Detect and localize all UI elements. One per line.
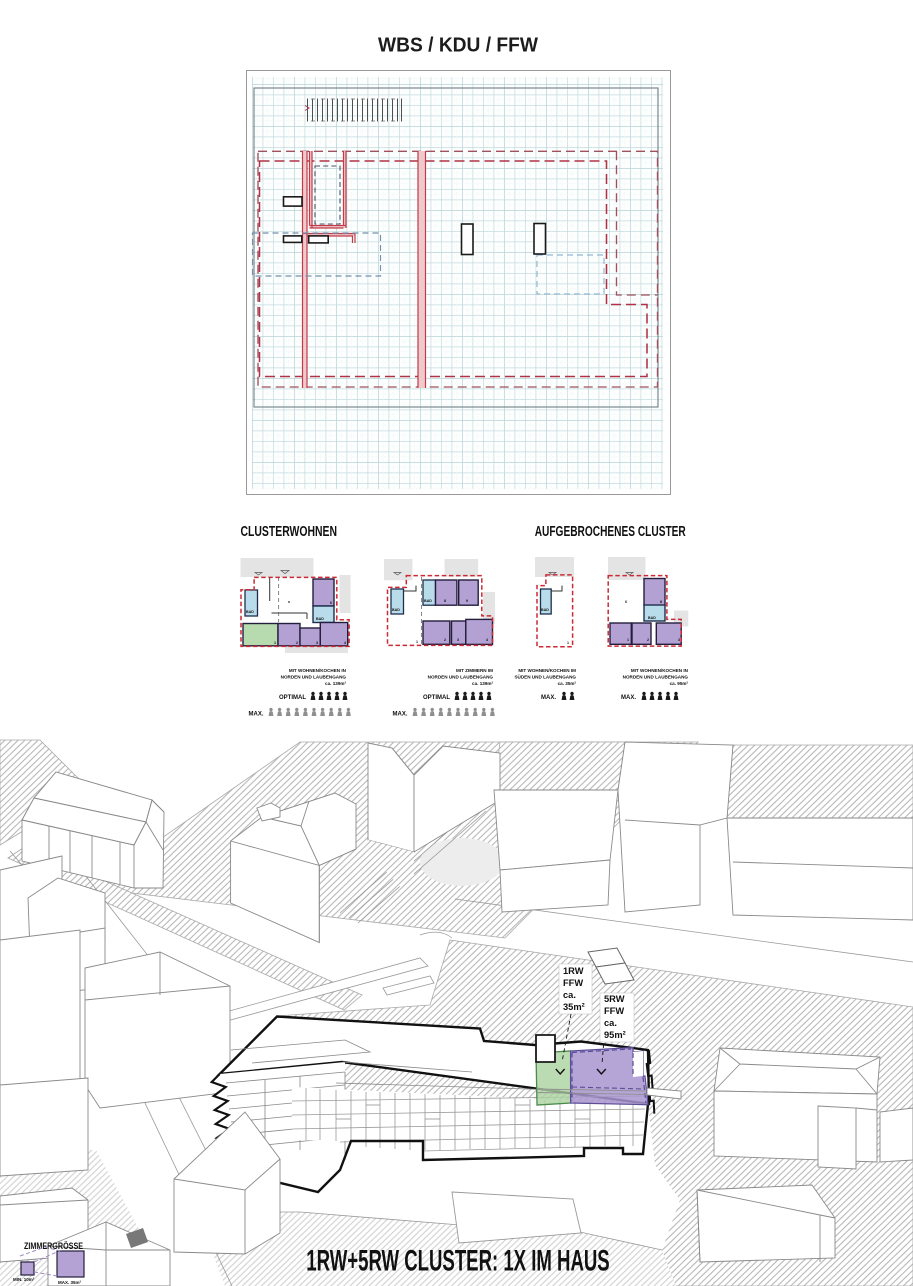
svg-text:ca. 139m²: ca. 139m²: [472, 681, 493, 686]
svg-text:4: 4: [486, 638, 488, 642]
svg-text:9: 9: [466, 599, 468, 603]
svg-text:ca. 35m²: ca. 35m²: [558, 681, 577, 686]
svg-text:MAX.: MAX.: [393, 712, 408, 718]
svg-text:WBS / KDU / FFW: WBS / KDU / FFW: [378, 34, 538, 56]
svg-text:6: 6: [330, 601, 332, 605]
svg-text:MIN. 10m²: MIN. 10m²: [13, 1277, 35, 1282]
svg-text:35m²: 35m²: [563, 1002, 585, 1012]
svg-text:CLUSTERWOHNEN: CLUSTERWOHNEN: [241, 523, 338, 539]
svg-text:ca.: ca.: [563, 990, 576, 1000]
svg-text:BAD: BAD: [392, 608, 400, 612]
svg-text:OPTIMAL: OPTIMAL: [279, 695, 306, 701]
svg-text:1RW+5RW CLUSTER: 1X IM HAUS: 1RW+5RW CLUSTER: 1X IM HAUS: [306, 1244, 609, 1278]
svg-text:MAX.: MAX.: [621, 695, 636, 701]
svg-text:1: 1: [567, 641, 569, 645]
svg-text:ca.: ca.: [604, 1018, 617, 1028]
svg-text:MIT WOHNEN/KOCHEN IN: MIT WOHNEN/KOCHEN IN: [289, 668, 347, 673]
svg-text:MAX. 35m²: MAX. 35m²: [58, 1280, 82, 1285]
svg-text:NORDEN UND LAUBENGANG: NORDEN UND LAUBENGANG: [623, 675, 689, 680]
svg-text:3: 3: [457, 638, 459, 642]
svg-text:8: 8: [444, 599, 446, 603]
svg-text:FFW: FFW: [604, 1006, 624, 1016]
svg-text:1: 1: [627, 638, 629, 642]
svg-text:MAX.: MAX.: [541, 695, 556, 701]
svg-text:95m²: 95m²: [604, 1030, 626, 1040]
svg-text:SÜDEN UND LAUBENGANG: SÜDEN UND LAUBENGANG: [514, 674, 576, 680]
svg-text:1: 1: [274, 641, 276, 645]
svg-text:1: 1: [416, 640, 418, 644]
svg-text:MIT WOHNEN/KOCHEN IN: MIT WOHNEN/KOCHEN IN: [631, 668, 689, 673]
svg-text:ca. 139m²: ca. 139m²: [325, 681, 346, 686]
svg-text:3: 3: [678, 638, 680, 642]
svg-text:3: 3: [316, 641, 318, 645]
svg-text:5RW: 5RW: [604, 994, 625, 1004]
svg-text:2: 2: [647, 638, 649, 642]
svg-text:MIT WOHNEN/KOCHEN IM: MIT WOHNEN/KOCHEN IM: [518, 668, 576, 673]
svg-text:NORDEN UND LAUBENGANG: NORDEN UND LAUBENGANG: [281, 675, 347, 680]
svg-text:4: 4: [344, 641, 346, 645]
svg-text:ca. 95m²: ca. 95m²: [670, 681, 689, 686]
svg-text:NORDEN UND LAUBENGANG: NORDEN UND LAUBENGANG: [428, 675, 494, 680]
svg-text:BAD: BAD: [246, 610, 254, 614]
svg-text:2: 2: [296, 641, 298, 645]
svg-text:6: 6: [625, 600, 627, 604]
svg-text:AUFGEBROCHENES CLUSTER: AUFGEBROCHENES CLUSTER: [535, 523, 686, 539]
svg-text:FFW: FFW: [563, 978, 583, 988]
svg-text:BAD: BAD: [316, 617, 324, 621]
svg-text:MIT ZIMMERN IM: MIT ZIMMERN IM: [456, 668, 493, 673]
svg-text:2: 2: [444, 638, 446, 642]
svg-text:BAD: BAD: [541, 608, 549, 612]
svg-text:BAD: BAD: [648, 616, 656, 620]
svg-text:BAD: BAD: [424, 599, 432, 603]
svg-text:1RW: 1RW: [563, 966, 584, 976]
svg-text:8: 8: [660, 600, 662, 604]
svg-text:MAX.: MAX.: [249, 712, 264, 718]
svg-text:OPTIMAL: OPTIMAL: [423, 695, 450, 701]
